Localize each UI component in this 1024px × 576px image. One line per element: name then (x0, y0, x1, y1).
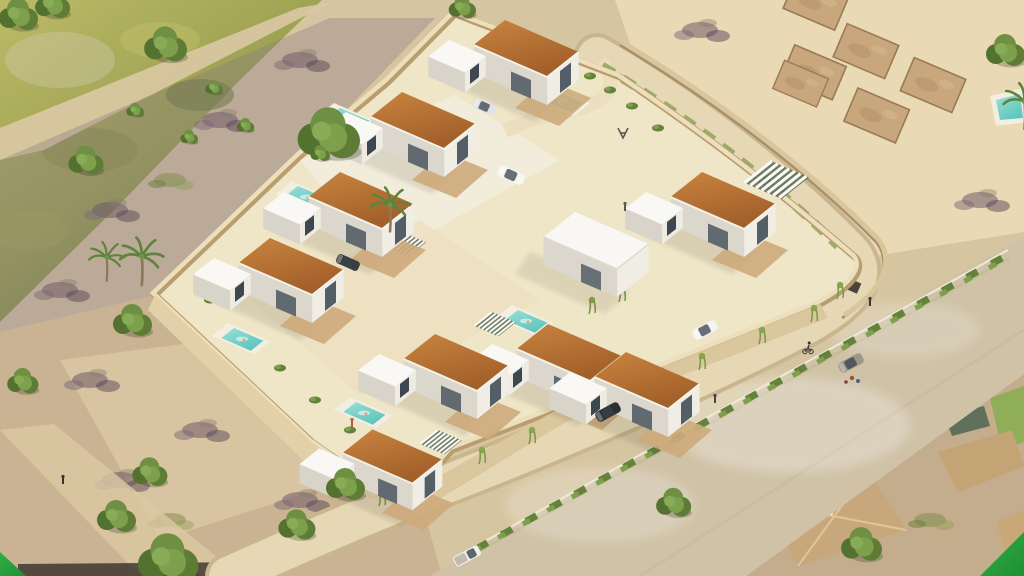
render-viewport (0, 0, 1024, 576)
aerial-render (0, 0, 1024, 576)
